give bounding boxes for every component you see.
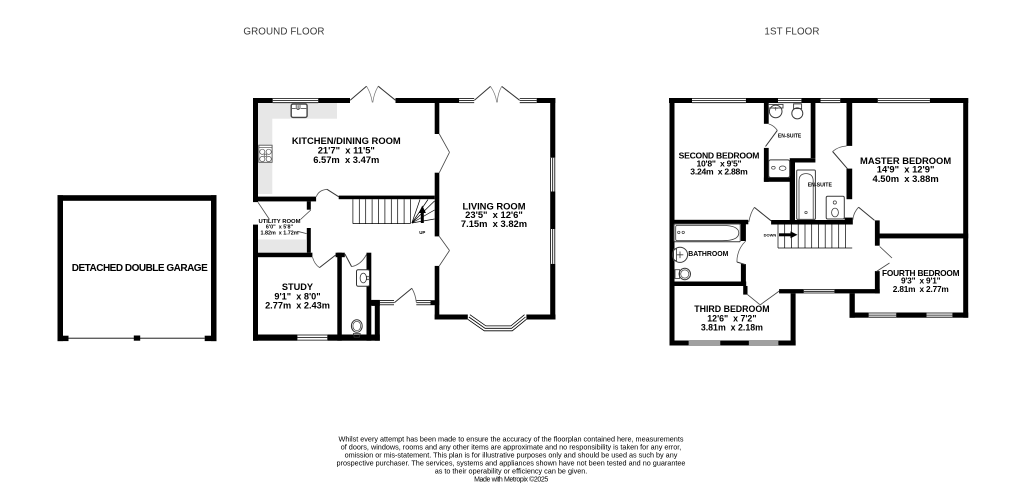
svg-text:7.15m x 3.82m: 7.15m x 3.82m [461, 218, 527, 229]
svg-text:DOWN: DOWN [764, 232, 777, 237]
svg-text:STUDY: STUDY [282, 282, 313, 292]
svg-text:2.81m x 2.77m: 2.81m x 2.77m [893, 284, 949, 294]
svg-text:GROUND FLOOR: GROUND FLOOR [243, 27, 324, 38]
svg-text:3.81m x 2.18m: 3.81m x 2.18m [701, 322, 763, 332]
svg-text:6.57m x 3.47m: 6.57m x 3.47m [313, 154, 379, 165]
svg-text:2.77m x 2.43m: 2.77m x 2.43m [265, 300, 330, 310]
svg-text:DETACHED DOUBLE GARAGE: DETACHED DOUBLE GARAGE [72, 263, 208, 274]
svg-text:BATHROOM: BATHROOM [688, 251, 728, 258]
svg-text:4.50m x 3.88m: 4.50m x 3.88m [872, 173, 938, 184]
svg-text:EN-SUITE: EN-SUITE [808, 183, 833, 189]
svg-text:1ST FLOOR: 1ST FLOOR [764, 27, 819, 38]
svg-text:Made with Metropix ©2025: Made with Metropix ©2025 [474, 476, 548, 484]
svg-text:EN-SUITE: EN-SUITE [778, 134, 802, 140]
svg-text:1.82m x 1.72m: 1.82m x 1.72m [260, 230, 298, 236]
svg-text:UP: UP [419, 230, 425, 235]
svg-text:as to their operability or eff: as to their operability or efficiency ca… [435, 467, 588, 476]
svg-text:3.24m x 2.88m: 3.24m x 2.88m [690, 166, 748, 176]
